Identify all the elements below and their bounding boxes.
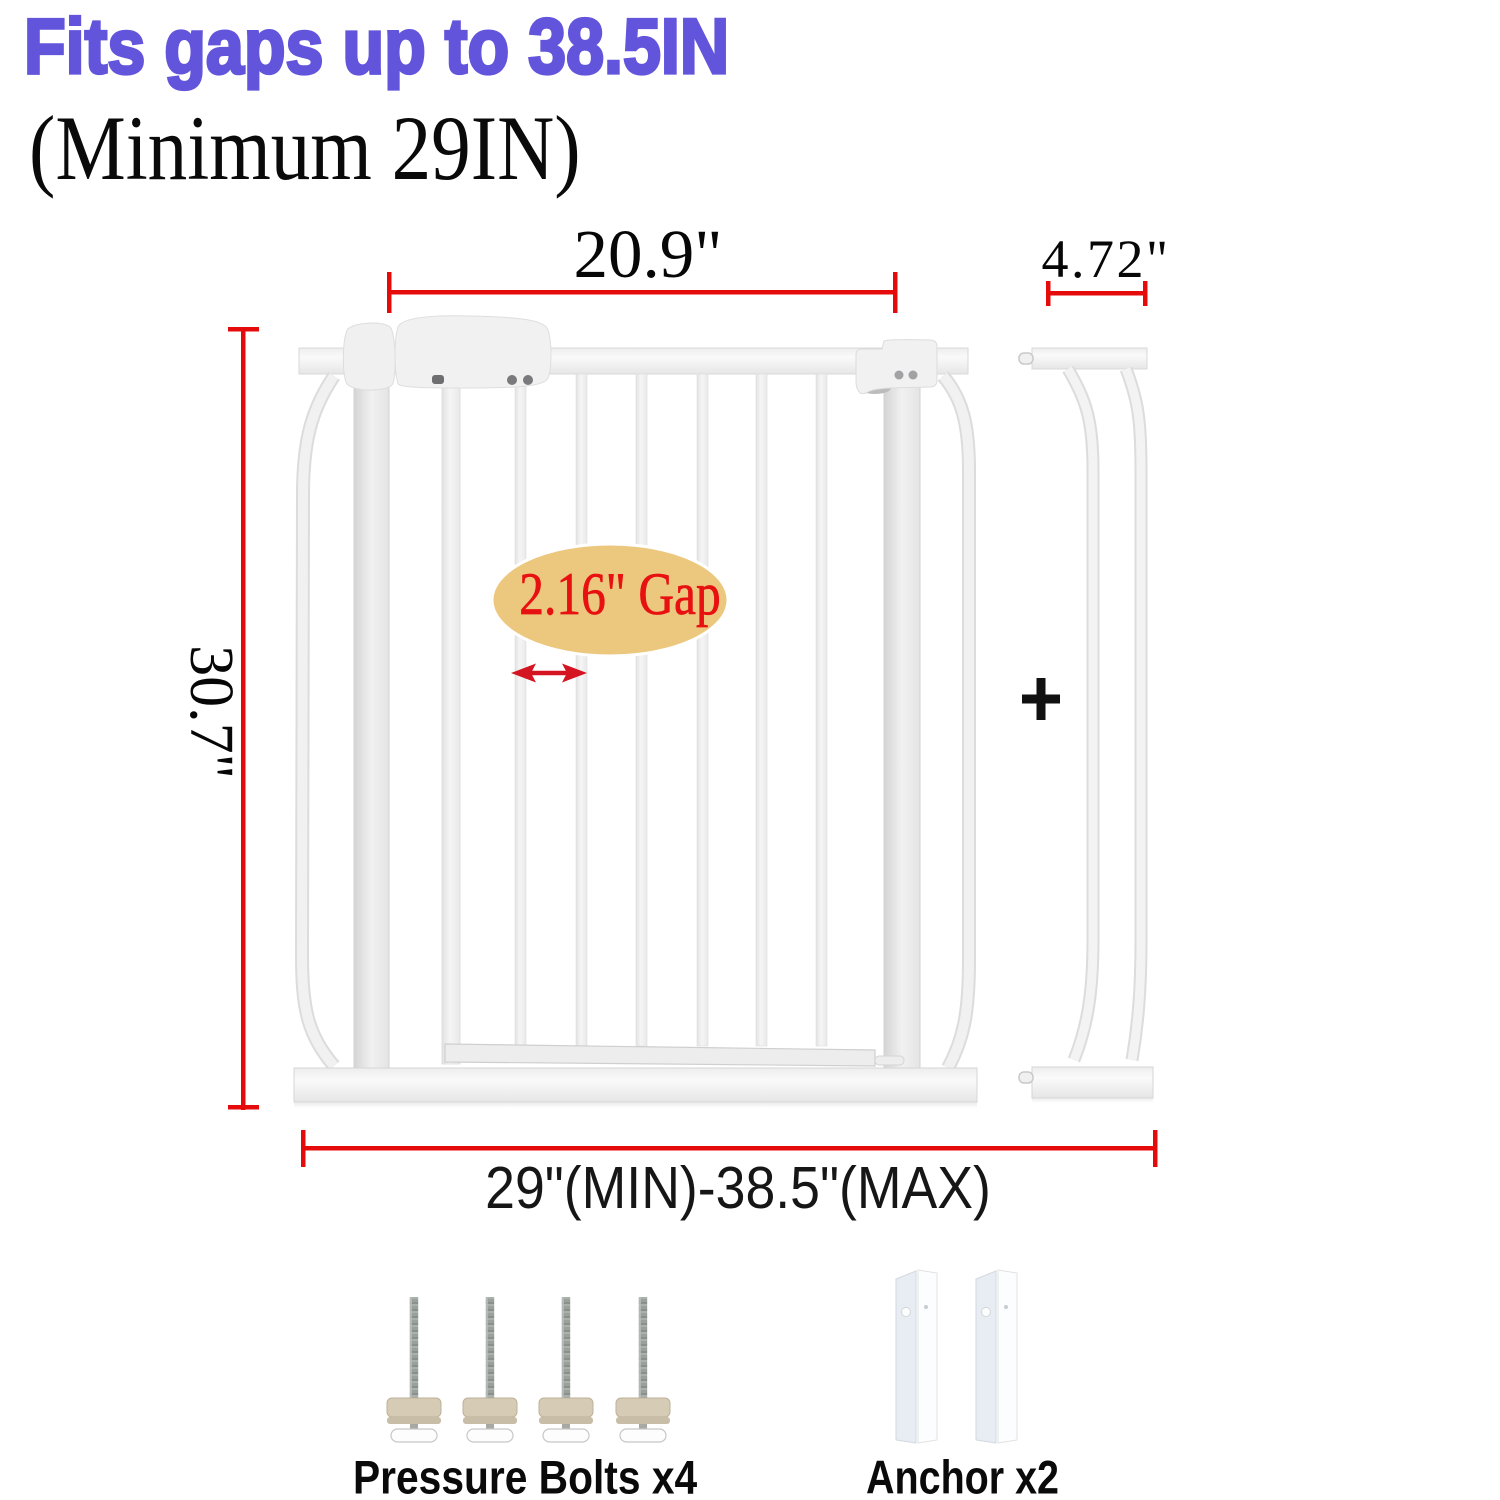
- svg-text:30.7": 30.7": [177, 645, 245, 779]
- svg-text:2.16" Gap: 2.16" Gap: [519, 561, 720, 628]
- svg-text:(Minimum 29IN): (Minimum 29IN): [29, 98, 581, 200]
- svg-text:4.72": 4.72": [1041, 229, 1170, 289]
- svg-text:29"(MIN)-38.5"(MAX): 29"(MIN)-38.5"(MAX): [485, 1155, 991, 1221]
- svg-text:Anchor x2: Anchor x2: [866, 1452, 1059, 1500]
- svg-text:20.9": 20.9": [574, 216, 723, 292]
- svg-text:Pressure Bolts x4: Pressure Bolts x4: [353, 1452, 698, 1500]
- svg-text:Fits gaps up to 38.5IN: Fits gaps up to 38.5IN: [24, 3, 729, 90]
